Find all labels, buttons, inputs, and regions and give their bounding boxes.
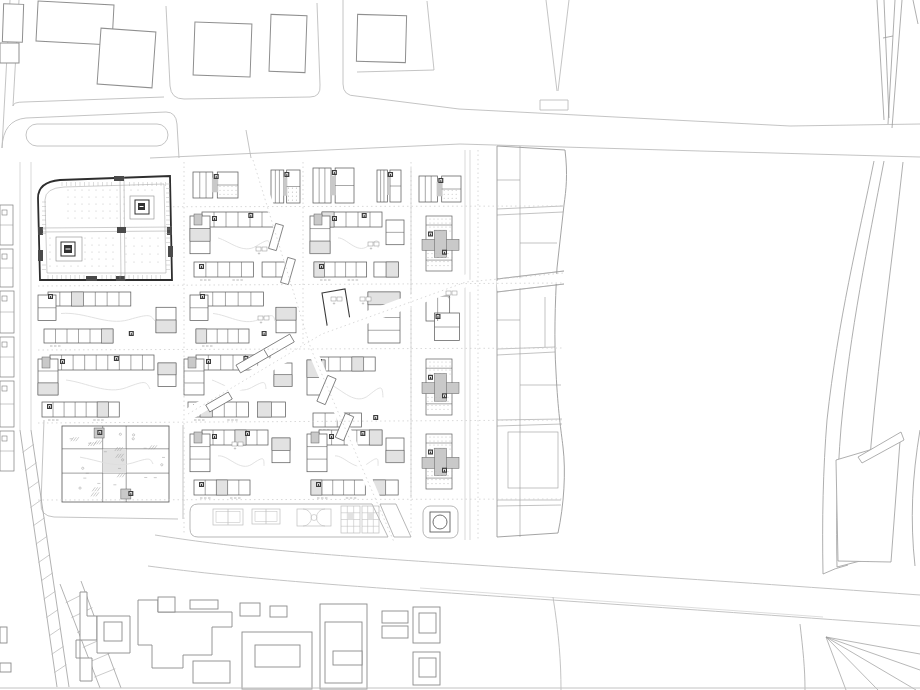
highway-corridor bbox=[823, 0, 920, 574]
lower-diagonal-road bbox=[148, 535, 920, 626]
monument-plaza bbox=[423, 506, 458, 538]
context-buildings-top bbox=[0, 1, 407, 88]
city-block bbox=[426, 296, 460, 341]
city-block bbox=[422, 216, 459, 271]
city-block bbox=[422, 434, 459, 489]
city-block bbox=[271, 170, 300, 203]
city-block bbox=[38, 292, 176, 346]
sports-and-gardens-band bbox=[190, 504, 458, 538]
road-network bbox=[2, 0, 920, 690]
site-plan-drawing bbox=[0, 0, 920, 690]
focus-building-complex bbox=[38, 176, 173, 281]
left-edge-building-strip bbox=[0, 205, 14, 471]
city-block bbox=[377, 170, 401, 202]
city-block bbox=[422, 359, 459, 415]
context-buildings-bottom bbox=[0, 592, 440, 689]
city-block bbox=[310, 212, 404, 280]
city-block bbox=[190, 292, 296, 346]
city-block bbox=[190, 430, 290, 498]
allotment-plots-column bbox=[497, 146, 567, 537]
city-block bbox=[38, 355, 176, 420]
masterplan-canvas bbox=[0, 0, 920, 690]
city-block bbox=[419, 176, 461, 202]
city-block bbox=[313, 168, 354, 203]
rail-fan-lines bbox=[800, 624, 920, 690]
city-block bbox=[62, 426, 169, 502]
city-block bbox=[193, 172, 238, 198]
